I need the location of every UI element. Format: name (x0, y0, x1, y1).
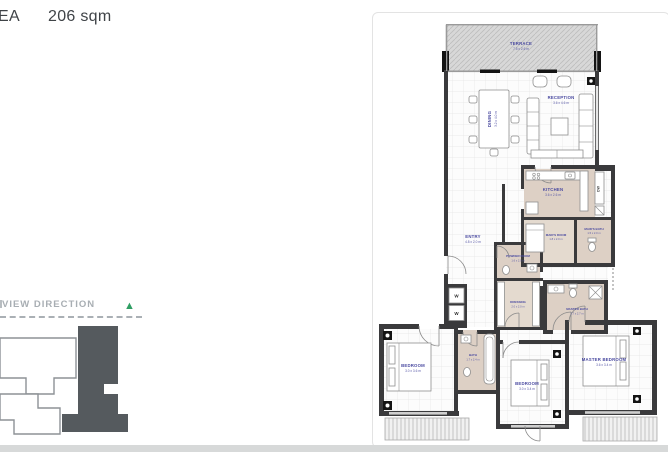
room-dims-terrace: 7.5 x 2.6 m (513, 47, 529, 51)
dishwasher-label: DW (597, 185, 601, 191)
room-dims-master-bath: 1.7 x 2.7 m (570, 312, 584, 316)
room-dims-bedroom2: 3.0 x 3.4 m (519, 387, 535, 391)
room-label-master-bedroom: MASTER BEDROOM (582, 357, 627, 362)
area-value: 206 sqm (48, 8, 111, 26)
room-dims-bath: 1.7 x 2.4 m (466, 358, 480, 362)
building-keyplan (0, 324, 150, 438)
room-label-terrace: TERRACE (510, 41, 532, 46)
room-label-bedroom1: BEDROOM (401, 363, 425, 368)
area-label: EA (0, 8, 20, 26)
keyplan-unit-outline-1 (0, 338, 76, 394)
floorplan-page: EA 206 sqm VIEW DIRECTION ▲ (0, 0, 668, 452)
maids-bed-icon (526, 224, 544, 252)
room-dims-maids-room: 1.8 x 2.0 m (549, 237, 563, 241)
room-label-maids-room: MAID'S ROOM (546, 233, 567, 237)
room-label-dining: DINING (487, 110, 492, 127)
room-dims-bedroom1: 3.0 x 3.6 m (405, 369, 421, 373)
room-label-entry: ENTRY (465, 234, 480, 239)
view-direction-label: VIEW DIRECTION (2, 299, 95, 310)
bottom-gray-strip (0, 445, 668, 452)
room-label-master-bath: MASTER BATH (566, 307, 588, 311)
keyplan-unit-outline-2 (0, 394, 60, 434)
floorplan-drawing: TERRACE 7.5 x 2.6 m DINING 3.2 x 4.0 m R… (375, 14, 665, 444)
room-label-kitchen: KITCHEN (543, 187, 564, 192)
floorplan-card: TERRACE 7.5 x 2.6 m DINING 3.2 x 4.0 m R… (372, 12, 668, 448)
room-dims-powder: 1.6 x 2.0 m (511, 259, 525, 263)
room-label-bath: BATH (469, 353, 477, 357)
north-arrow-icon: ▲ (124, 300, 135, 312)
room-label-powder: POWDER ROOM (506, 254, 530, 258)
room-dims-dressing: 2.0 x 2.0 m (511, 305, 525, 309)
room-label-maids-bath: MAID'S BATH (584, 227, 603, 231)
view-direction-dashed-line (0, 316, 142, 318)
maids-bath-fixtures-icon (588, 238, 596, 252)
room-label-reception: RECEPTION (548, 95, 575, 100)
room-label-bedroom2: BEDROOM (515, 381, 539, 386)
room-dims-maids-bath: 1.5 x 2.0 m (587, 231, 601, 235)
room-dims-kitchen: 3.6 x 2.6 m (545, 193, 561, 197)
room-dims-reception: 3.6 x 4.6 m (553, 101, 569, 105)
balcony-right-area (583, 417, 657, 441)
room-dims-master-bedroom: 3.6 x 3.4 m (596, 363, 612, 367)
balcony-left-area (385, 418, 469, 440)
room-dims-dining: 3.2 x 4.0 m (494, 111, 498, 127)
room-label-dressing: DRESSING (510, 300, 526, 304)
room-dims-entry: 4.8 x 2.0 m (465, 240, 481, 244)
